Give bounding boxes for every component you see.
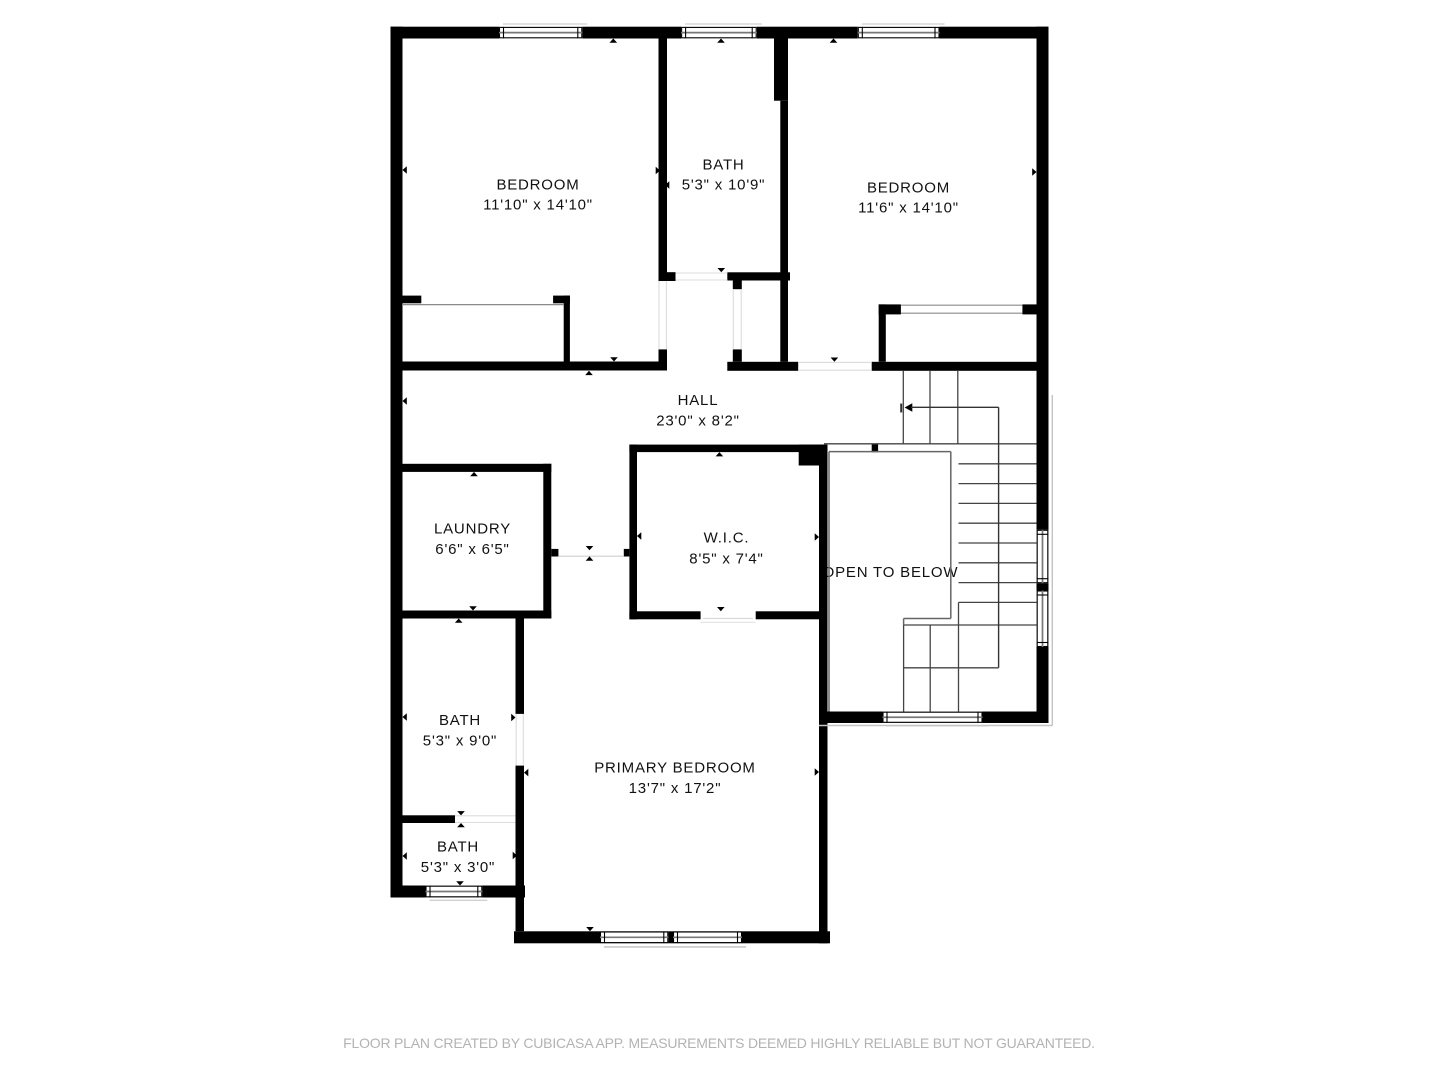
svg-text:5'3" x 3'0": 5'3" x 3'0": [421, 859, 495, 876]
svg-text:6'6" x 6'5": 6'6" x 6'5": [435, 541, 509, 558]
svg-text:13'7" x 17'2": 13'7" x 17'2": [629, 780, 722, 797]
svg-text:11'10" x 14'10": 11'10" x 14'10": [483, 197, 593, 214]
svg-text:BEDROOM: BEDROOM: [496, 177, 579, 194]
svg-text:5'3" x 10'9": 5'3" x 10'9": [682, 177, 766, 194]
svg-text:8'5" x 7'4": 8'5" x 7'4": [689, 551, 763, 568]
svg-text:W.I.C.: W.I.C.: [704, 530, 750, 547]
svg-text:LAUNDRY: LAUNDRY: [434, 521, 511, 538]
svg-text:BEDROOM: BEDROOM: [867, 180, 950, 197]
svg-text:PRIMARY BEDROOM: PRIMARY BEDROOM: [594, 760, 755, 777]
svg-text:5'3" x 9'0": 5'3" x 9'0": [423, 733, 497, 750]
svg-text:BATH: BATH: [702, 157, 744, 174]
svg-text:11'6" x 14'10": 11'6" x 14'10": [858, 200, 959, 217]
svg-text:BATH: BATH: [439, 712, 481, 729]
svg-text:23'0" x 8'2": 23'0" x 8'2": [656, 413, 740, 430]
svg-text:BATH: BATH: [437, 839, 479, 856]
svg-text:OPEN TO BELOW: OPEN TO BELOW: [823, 564, 959, 581]
svg-text:FLOOR PLAN CREATED BY CUBICASA: FLOOR PLAN CREATED BY CUBICASA APP. MEAS…: [343, 1035, 1095, 1051]
svg-text:HALL: HALL: [678, 392, 719, 409]
